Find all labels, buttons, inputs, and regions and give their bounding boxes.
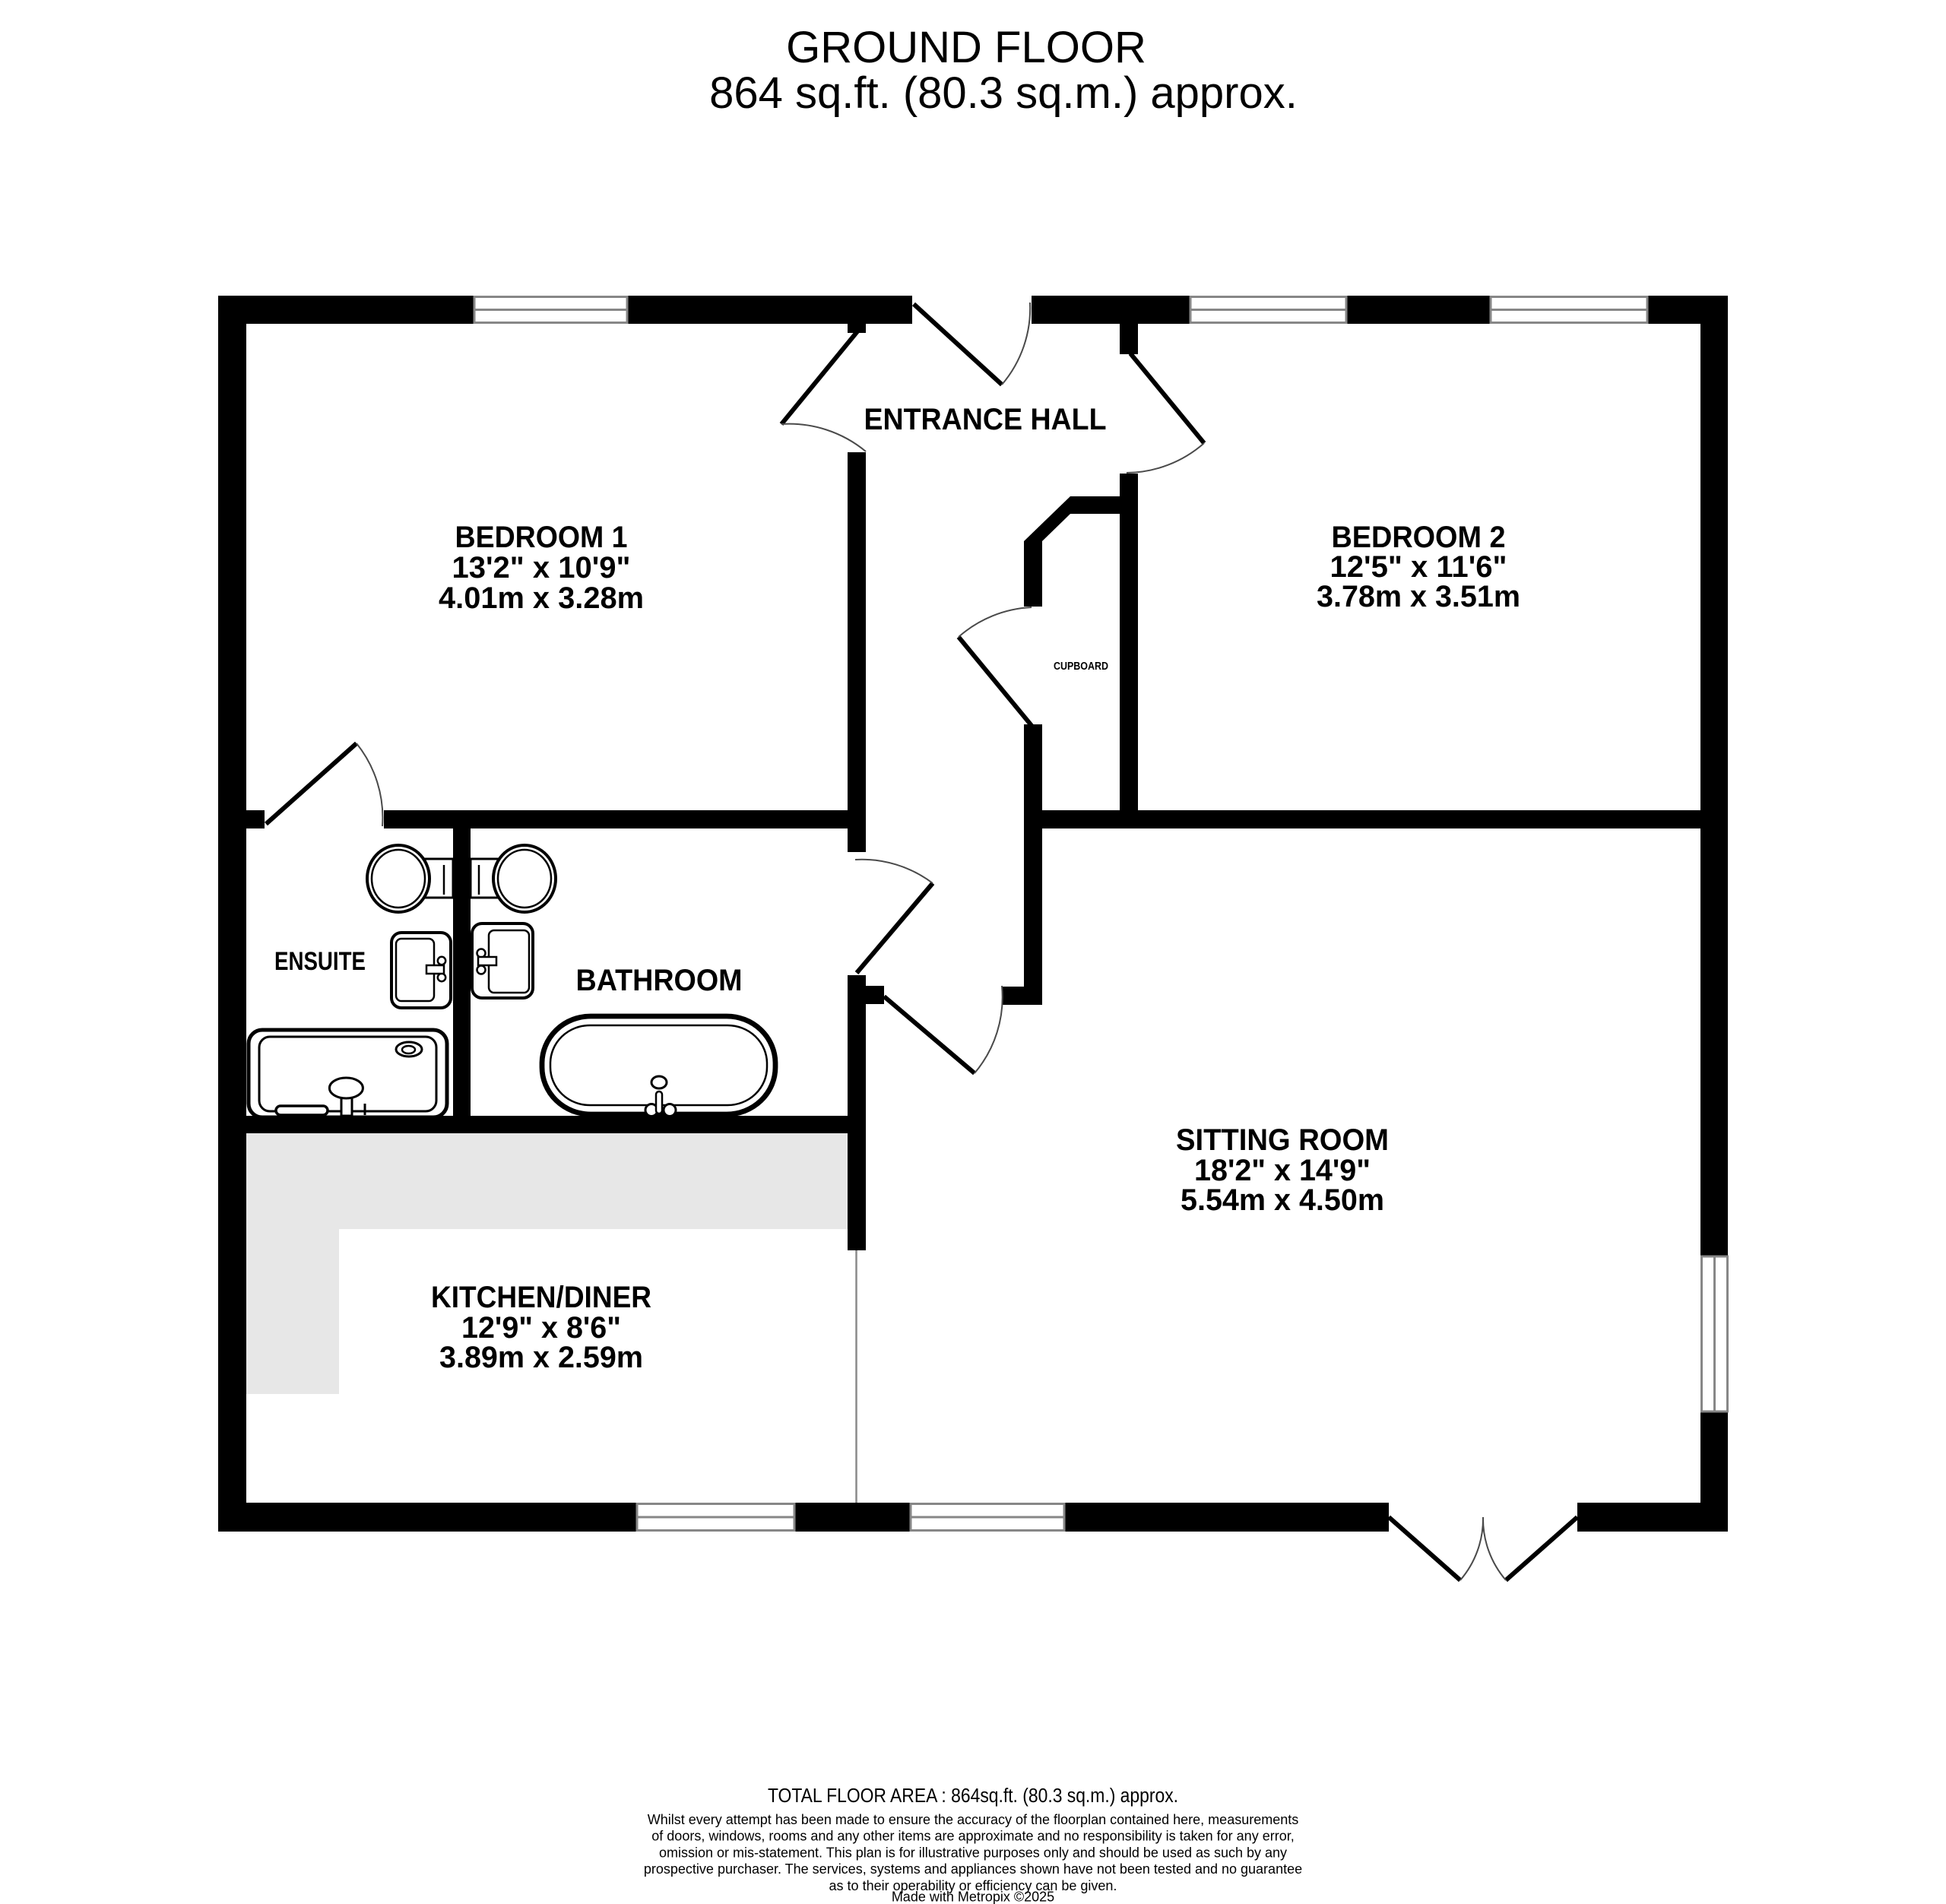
svg-text:ENSUITE: ENSUITE bbox=[274, 947, 366, 976]
svg-text:3.89m x 2.59m: 3.89m x 2.59m bbox=[439, 1341, 643, 1374]
svg-text:ENTRANCE HALL: ENTRANCE HALL bbox=[864, 403, 1107, 436]
svg-text:BEDROOM 1: BEDROOM 1 bbox=[455, 521, 628, 554]
svg-text:5.54m x 4.50m: 5.54m x 4.50m bbox=[1181, 1183, 1384, 1217]
svg-text:omission or mis-statement. Thi: omission or mis-statement. This plan is … bbox=[659, 1845, 1287, 1860]
svg-text:13'2" x 10'9": 13'2" x 10'9" bbox=[452, 551, 631, 585]
svg-text:SITTING ROOM: SITTING ROOM bbox=[1176, 1123, 1389, 1157]
svg-text:CUPBOARD: CUPBOARD bbox=[1054, 661, 1108, 673]
svg-text:TOTAL FLOOR AREA : 864sq.ft. (: TOTAL FLOOR AREA : 864sq.ft. (80.3 sq.m.… bbox=[768, 1785, 1178, 1807]
svg-text:18'2" x 14'9": 18'2" x 14'9" bbox=[1194, 1154, 1371, 1187]
svg-text:prospective purchaser. The ser: prospective purchaser. The services, sys… bbox=[644, 1861, 1302, 1877]
svg-text:Made with Metropix ©2025: Made with Metropix ©2025 bbox=[892, 1890, 1054, 1904]
svg-text:BEDROOM 2: BEDROOM 2 bbox=[1332, 521, 1506, 554]
svg-text:864 sq.ft. (80.3 sq.m.) approx: 864 sq.ft. (80.3 sq.m.) approx. bbox=[709, 68, 1298, 118]
svg-text:4.01m x 3.28m: 4.01m x 3.28m bbox=[439, 581, 644, 615]
svg-text:12'9" x 8'6": 12'9" x 8'6" bbox=[461, 1311, 621, 1345]
svg-text:3.78m x 3.51m: 3.78m x 3.51m bbox=[1317, 580, 1520, 613]
svg-text:Whilst every attempt has been: Whilst every attempt has been made to en… bbox=[648, 1812, 1298, 1827]
svg-text:of doors, windows, rooms and a: of doors, windows, rooms and any other i… bbox=[651, 1829, 1294, 1844]
svg-text:GROUND FLOOR: GROUND FLOOR bbox=[786, 23, 1146, 72]
svg-text:KITCHEN/DINER: KITCHEN/DINER bbox=[431, 1281, 651, 1314]
svg-text:BATHROOM: BATHROOM bbox=[576, 964, 743, 997]
svg-text:12'5" x 11'6": 12'5" x 11'6" bbox=[1330, 550, 1507, 584]
